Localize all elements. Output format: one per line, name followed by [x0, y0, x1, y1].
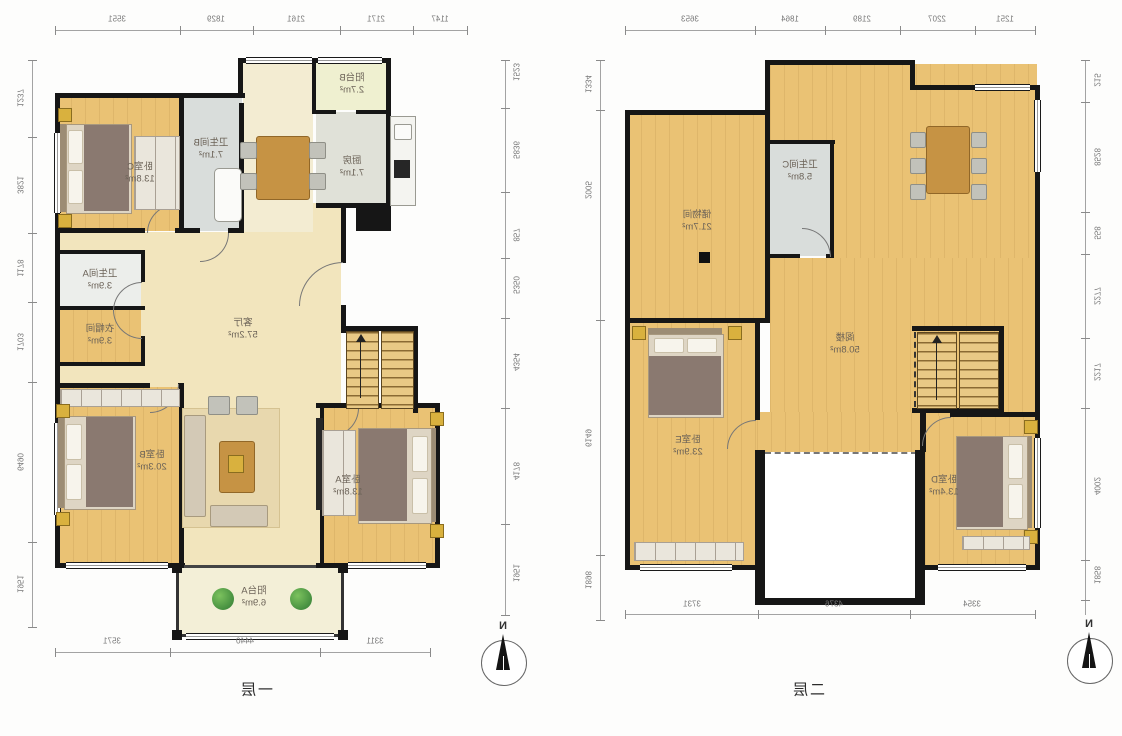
- dim-tick: [596, 60, 605, 61]
- wall: [312, 58, 316, 114]
- dim-tick: [55, 26, 56, 35]
- wall: [184, 228, 200, 233]
- dim-tick: [825, 26, 826, 35]
- dim-label: 558: [1093, 226, 1102, 239]
- room-label-bath-a: 卫生间A3.9m²: [83, 269, 118, 294]
- dim-label: 857: [512, 228, 521, 241]
- wall: [755, 450, 765, 602]
- dining-table: [926, 126, 970, 194]
- compass-needle: [503, 656, 504, 670]
- window: [186, 633, 334, 640]
- wall: [356, 203, 391, 231]
- dining-chair: [309, 173, 326, 190]
- wardrobe: [322, 430, 356, 516]
- room-label-living: 客厅57.2m²: [228, 318, 258, 343]
- bench: [962, 536, 1030, 550]
- dim-label: 3571: [103, 637, 121, 646]
- dimension-line: [625, 614, 1035, 615]
- room-hallway: [757, 412, 922, 452]
- dim-tick: [28, 233, 37, 234]
- dim-tick: [55, 648, 56, 657]
- dim-tick: [1081, 254, 1090, 255]
- bed-pillow: [687, 338, 717, 353]
- dim-tick: [1035, 26, 1036, 35]
- dim-tick: [28, 627, 37, 628]
- dim-label: 2161: [287, 15, 305, 24]
- dim-label: 1898: [584, 571, 593, 589]
- bed-pillow: [654, 338, 684, 353]
- dim-label: 2277: [1093, 287, 1102, 305]
- dim-label: 1951: [16, 575, 25, 593]
- room-label-bath-b: 卫生间B7.1m²: [194, 138, 229, 163]
- dim-tick: [501, 258, 510, 259]
- dining-chair: [910, 184, 926, 200]
- compass-north-label: N: [499, 620, 507, 632]
- dim-label: 2217: [1093, 363, 1102, 381]
- bed-duvet: [957, 437, 1003, 527]
- dim-label: 1334: [584, 75, 593, 93]
- dim-tick: [501, 60, 510, 61]
- balcony-railing: [341, 567, 344, 637]
- nightstand: [58, 214, 72, 228]
- wall: [312, 110, 336, 114]
- dimension-line: [625, 30, 1035, 31]
- dim-tick: [501, 318, 510, 319]
- dim-label: 1147: [431, 15, 448, 24]
- dim-label: 2171: [367, 15, 385, 24]
- wall: [55, 250, 145, 254]
- dim-label: 4002: [1093, 477, 1102, 495]
- kitchen-sink: [394, 124, 412, 140]
- window: [1034, 100, 1041, 172]
- dim-label: 1251: [996, 15, 1014, 24]
- dim-tick: [596, 620, 605, 621]
- nightstand: [56, 512, 70, 526]
- bed-pillow: [412, 436, 428, 472]
- dining-chair: [240, 142, 257, 159]
- wall: [830, 140, 834, 258]
- dim-tick: [501, 408, 510, 409]
- dim-tick: [170, 648, 171, 657]
- dim-tick: [758, 610, 759, 619]
- room-label-bed-e: 卧室E23.9m²: [673, 435, 703, 460]
- sofa: [184, 415, 206, 517]
- dim-label: 1178: [16, 259, 25, 276]
- dim-tick: [596, 110, 605, 111]
- dim-tick: [413, 26, 414, 35]
- stairs-arrow: [360, 338, 361, 398]
- armchair: [208, 396, 230, 415]
- wall: [55, 362, 145, 366]
- room-label-bed-b: 卧室B20.3m²: [137, 450, 167, 475]
- room-label-balcony-b: 阳台B2.7m²: [339, 73, 364, 98]
- dim-tick: [501, 615, 510, 616]
- dining-chair: [240, 173, 257, 190]
- bed-duvet: [359, 429, 407, 521]
- dim-tick: [1081, 60, 1090, 61]
- bed-duvet: [649, 356, 721, 415]
- bed-duvet: [84, 125, 129, 211]
- dim-tick: [28, 542, 37, 543]
- wall: [755, 322, 760, 420]
- room-label-cloakroom: 衣帽间3.9m²: [86, 324, 115, 349]
- room-label-bed-d: 卧室D13.4m²: [929, 475, 959, 500]
- wall: [175, 228, 184, 233]
- window: [66, 562, 168, 569]
- table-decor: [228, 455, 244, 473]
- dim-tick: [625, 610, 626, 619]
- plant-icon: [290, 588, 312, 610]
- dim-label: 4440: [236, 637, 254, 646]
- nightstand: [728, 326, 742, 340]
- dining-chair: [971, 184, 987, 200]
- dimension-line: [55, 30, 467, 31]
- wall: [55, 93, 245, 98]
- dining-table: [256, 136, 310, 200]
- sliding-door: [184, 565, 316, 568]
- bed-pillow: [68, 130, 83, 164]
- dim-tick: [340, 26, 341, 35]
- room-label-bed-c: 卧室C13.8m²: [125, 162, 155, 187]
- room-label-balcony-a: 阳台A6.9m²: [241, 586, 266, 611]
- wall: [238, 58, 243, 98]
- window: [938, 564, 1026, 571]
- wall: [55, 228, 145, 233]
- dim-tick: [501, 192, 510, 193]
- dim-tick: [28, 382, 37, 383]
- dim-tick: [625, 26, 626, 35]
- nightstand: [56, 404, 70, 418]
- dim-tick: [28, 137, 37, 138]
- dim-tick: [1081, 338, 1090, 339]
- dim-tick: [910, 610, 911, 619]
- room-label-storage: 储物间21.7m²: [682, 210, 712, 235]
- armchair: [236, 396, 258, 415]
- dim-tick: [467, 26, 468, 35]
- dim-tick: [28, 60, 37, 61]
- bed-pillow: [1008, 484, 1023, 519]
- wall: [765, 60, 915, 65]
- dining-chair: [309, 142, 326, 159]
- bed-pillow: [412, 478, 428, 514]
- bed-pillow: [66, 424, 82, 460]
- balcony-post: [338, 563, 348, 573]
- dim-label: 2207: [928, 15, 946, 24]
- bed-pillow: [66, 464, 82, 500]
- dim-label: 3551: [108, 15, 126, 24]
- dim-tick: [430, 648, 431, 657]
- dim-label: 4376: [825, 600, 843, 609]
- nightstand: [58, 108, 72, 122]
- dim-label: 1864: [781, 15, 799, 24]
- wall: [625, 318, 770, 323]
- dim-label: 2005: [584, 181, 593, 199]
- sofa: [210, 505, 268, 527]
- dim-label: 4178: [512, 462, 521, 480]
- wall: [141, 336, 145, 366]
- closet: [634, 542, 744, 561]
- stairs: [917, 332, 957, 409]
- wall: [386, 58, 391, 116]
- dim-tick: [180, 26, 181, 35]
- balcony-post: [172, 563, 182, 573]
- wall: [950, 412, 1040, 417]
- room-label-kitchen: 厨房7.1m²: [340, 156, 364, 181]
- dim-label: 6149: [584, 429, 593, 447]
- dim-label: 215: [1093, 73, 1102, 86]
- wall: [625, 110, 630, 570]
- void-open-below: [765, 452, 917, 604]
- wall: [228, 228, 244, 233]
- structural-column: [699, 252, 710, 263]
- dim-label: 3653: [681, 15, 699, 24]
- wall: [55, 383, 150, 388]
- nightstand: [430, 412, 444, 426]
- floorplan-image: 阳台B2.7m² 厨房7.1m² 卫生间B7.1m² 卧室C13.8m² 卫生间…: [0, 0, 1122, 736]
- dim-label: 3311: [366, 637, 383, 646]
- bed-duvet: [86, 417, 133, 507]
- stove: [394, 160, 410, 178]
- room-label-bath-c: 卫生间C5.8m²: [782, 160, 817, 185]
- bed-pillow: [1008, 444, 1023, 479]
- room-label-bed-a: 卧室A13.8m²: [333, 475, 363, 500]
- stairs: [346, 331, 379, 409]
- dim-tick: [320, 648, 321, 657]
- bed-pillow: [68, 170, 83, 204]
- dim-tick: [1081, 408, 1090, 409]
- wall: [316, 203, 361, 208]
- dim-label: 1703: [16, 333, 25, 351]
- stairs-arrow-head: [932, 335, 942, 343]
- dining-chair: [971, 158, 987, 174]
- dim-label: 1858: [1093, 566, 1102, 584]
- nightstand: [1024, 420, 1038, 434]
- dim-label: 5836: [512, 141, 521, 159]
- plant-icon: [212, 588, 234, 610]
- dim-label: 3354: [963, 600, 981, 609]
- wall: [765, 254, 800, 258]
- closet: [60, 389, 180, 407]
- window: [975, 84, 1030, 91]
- nightstand: [430, 524, 444, 538]
- dimension-line: [505, 60, 506, 615]
- dim-tick: [755, 26, 756, 35]
- window: [1034, 438, 1041, 528]
- dimension-line: [55, 652, 430, 653]
- dim-label: 8528: [1093, 148, 1102, 166]
- dim-tick: [900, 26, 901, 35]
- wall: [765, 140, 835, 144]
- room-label-loft: 阁楼50.8m²: [830, 333, 860, 358]
- dim-label: 1237: [16, 89, 25, 107]
- compass-north-label: N: [1085, 618, 1093, 630]
- dining-chair: [971, 132, 987, 148]
- stairs: [959, 332, 999, 409]
- stairs-break-line: [914, 332, 916, 407]
- wall: [625, 110, 770, 115]
- stairs: [381, 331, 414, 409]
- wall: [765, 62, 770, 114]
- dim-tick: [596, 555, 605, 556]
- dim-label: 3731: [683, 600, 701, 609]
- bathtub: [214, 168, 242, 222]
- dim-tick: [1081, 212, 1090, 213]
- dim-tick: [253, 26, 254, 35]
- window: [246, 57, 312, 64]
- dim-tick: [975, 26, 976, 35]
- wall: [341, 203, 346, 263]
- dimension-line: [600, 60, 601, 620]
- wall: [141, 250, 145, 282]
- nightstand: [632, 326, 646, 340]
- dim-label: 2189: [853, 15, 871, 24]
- dim-tick: [1081, 600, 1090, 601]
- wall: [999, 326, 1004, 413]
- dim-tick: [28, 302, 37, 303]
- window: [640, 564, 732, 571]
- dim-label: 1523: [512, 63, 521, 81]
- dim-tick: [1035, 610, 1036, 619]
- balcony-post: [172, 630, 182, 640]
- dining-chair: [910, 158, 926, 174]
- wall: [912, 326, 1004, 331]
- balcony-railing: [176, 567, 179, 637]
- balcony-post: [338, 630, 348, 640]
- floor2-title: 二层: [791, 679, 825, 700]
- wall: [915, 450, 925, 602]
- window: [348, 562, 426, 569]
- compass-needle: [1089, 654, 1090, 668]
- dim-label: 6490: [16, 453, 25, 471]
- dim-tick: [501, 524, 510, 525]
- dim-tick: [1081, 102, 1090, 103]
- dim-label: 4354: [512, 353, 521, 371]
- dim-tick: [1081, 560, 1090, 561]
- dim-tick: [501, 108, 510, 109]
- dim-label: 1829: [207, 15, 225, 24]
- dim-label: 3821: [16, 176, 25, 194]
- dining-chair: [910, 132, 926, 148]
- stairs-arrow-head: [356, 334, 366, 342]
- window: [318, 57, 382, 64]
- stairs-arrow: [936, 340, 937, 400]
- dim-tick: [596, 320, 605, 321]
- dim-label: 5350: [512, 276, 521, 294]
- floor1-title: 一层: [239, 679, 273, 700]
- dim-label: 1951: [512, 564, 521, 582]
